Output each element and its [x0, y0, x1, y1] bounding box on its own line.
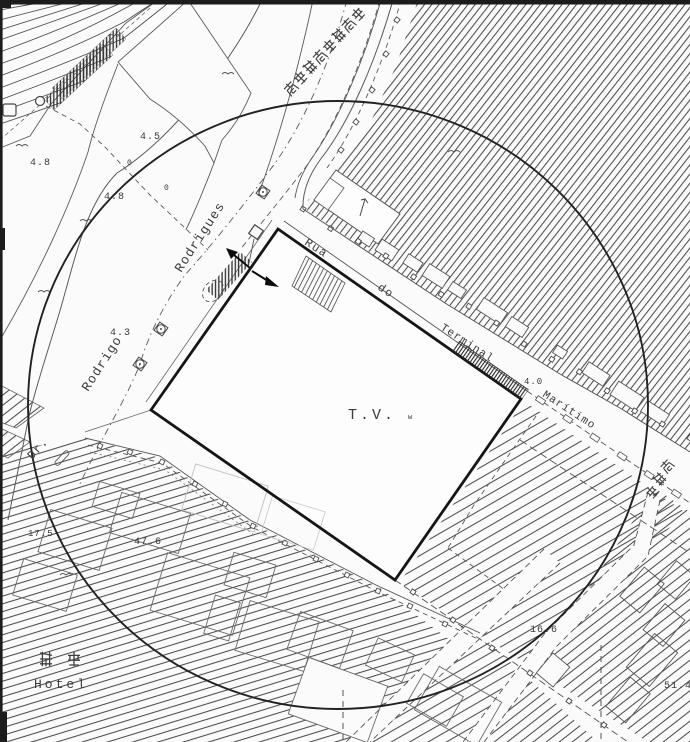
- svg-text:4.8: 4.8: [30, 158, 51, 169]
- svg-text:4.0: 4.0: [524, 377, 543, 387]
- svg-text:17.5: 17.5: [28, 529, 54, 539]
- svg-text:Hotel: Hotel: [34, 677, 88, 692]
- svg-text:4.3: 4.3: [110, 328, 131, 339]
- svg-text:47.6: 47.6: [134, 537, 162, 548]
- svg-text:16.6: 16.6: [530, 625, 558, 636]
- svg-text:T.V.: T.V.: [348, 407, 396, 424]
- svg-text:0: 0: [164, 184, 169, 193]
- svg-text:0: 0: [127, 159, 132, 168]
- svg-text:4.8: 4.8: [104, 192, 125, 203]
- svg-text:4.5: 4.5: [140, 132, 161, 143]
- svg-text:51.4: 51.4: [664, 681, 690, 692]
